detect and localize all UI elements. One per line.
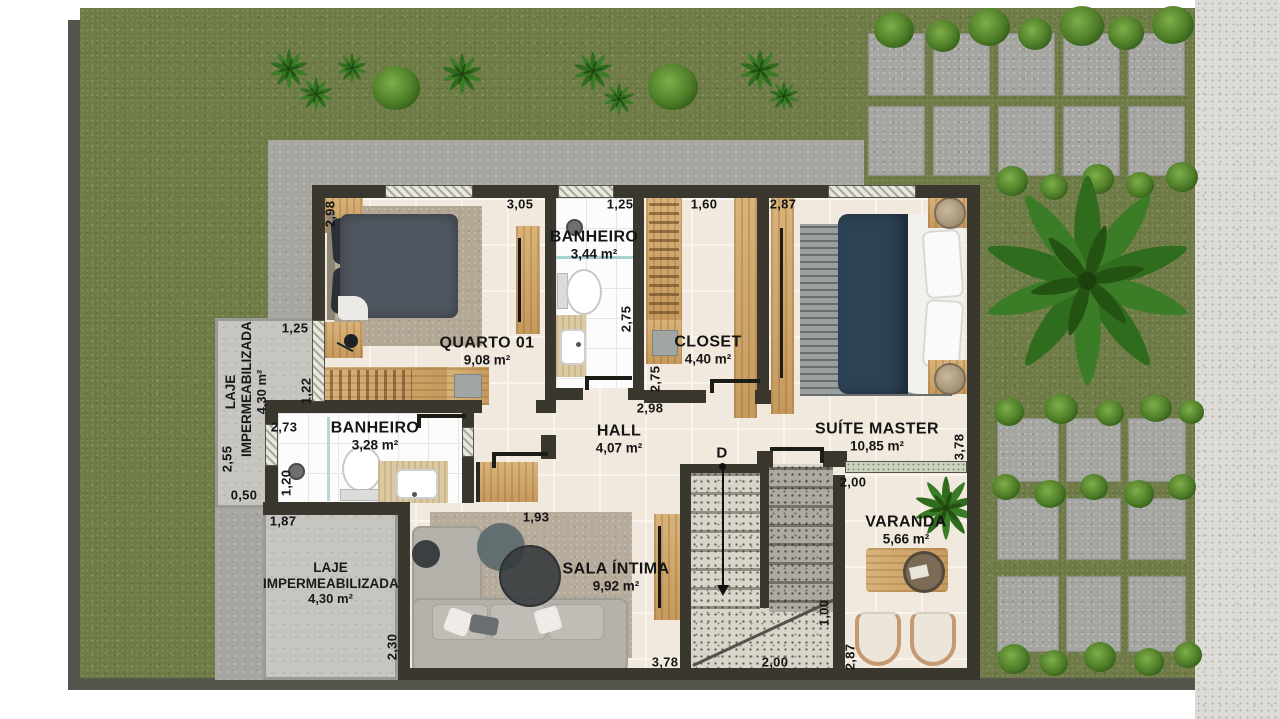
- stairs-direction-line: [722, 469, 724, 585]
- garden-paver: [1066, 498, 1121, 560]
- garden-bush: [1140, 394, 1172, 422]
- dim-laje-lower-right: 2,30: [386, 634, 399, 661]
- wardrobe-quarto-drawer: [454, 374, 482, 398]
- dim-closet-top: 1,60: [691, 198, 718, 211]
- garden-bush: [1060, 6, 1104, 46]
- site-wall-left: [68, 20, 80, 690]
- room-name: VARANDA: [865, 514, 947, 532]
- wall-sala-left: [398, 512, 410, 680]
- shower-glass-social: [327, 417, 330, 501]
- garden-bush: [1178, 400, 1204, 424]
- garden-bush: [1152, 6, 1194, 44]
- wall-stairs-divider: [760, 455, 769, 608]
- room-label-suite-master: SUÍTE MASTER 10,85 m²: [815, 421, 939, 454]
- small-palm-plant: [602, 82, 636, 116]
- sink-tap-344: [576, 342, 581, 347]
- dim-varanda-top: 2,00: [840, 476, 867, 489]
- varanda-railing: [845, 461, 967, 473]
- coffee-table-large: [499, 545, 561, 607]
- varanda-chair: [855, 612, 901, 666]
- garden-bush: [926, 20, 960, 52]
- room-label-closet: CLOSET 4,40 m²: [674, 334, 741, 367]
- garden-bush: [992, 474, 1020, 500]
- varanda-chair: [910, 612, 956, 666]
- hall-bench: [476, 462, 538, 502]
- room-area: 9,92 m²: [563, 579, 670, 594]
- garden-paver: [1128, 576, 1186, 652]
- garden-paver: [997, 576, 1059, 652]
- wall-closet-suite: [757, 185, 769, 404]
- bed-quarto-sheet: [338, 296, 368, 320]
- garden-bush: [994, 398, 1024, 426]
- dim-laje-upper-c: 2,55: [221, 446, 234, 473]
- garden-paver: [997, 418, 1059, 482]
- small-palm-plant: [298, 76, 334, 112]
- wardrobe-closet-clothes: [649, 196, 679, 314]
- garden-bush: [1018, 18, 1052, 50]
- tv-quarto: [518, 238, 521, 322]
- dim-suite-top: 2,87: [770, 198, 797, 211]
- sidewalk-strip: [1195, 0, 1280, 719]
- dim-suite-right: 3,78: [953, 434, 966, 461]
- window-banheiro-top: [558, 185, 614, 198]
- room-label-banheiro-social: BANHEIRO 3,28 m²: [331, 420, 420, 453]
- garden-bush: [648, 64, 698, 110]
- garden-bush: [1124, 480, 1154, 508]
- garden-bush: [1044, 394, 1078, 424]
- door-quarto: [492, 452, 548, 468]
- garden-bush: [372, 66, 420, 110]
- room-area: 4,40 m²: [674, 352, 741, 367]
- laje-name: LAJE IMPERMEABILIZADA: [223, 327, 254, 457]
- pillow-suite: [922, 299, 965, 369]
- door-closet: [710, 379, 760, 393]
- ottoman-dark: [412, 540, 440, 568]
- dim-laje-upper-b: 1,22: [300, 378, 313, 405]
- garden-bush: [968, 8, 1010, 46]
- room-label-varanda: VARANDA 5,66 m²: [865, 514, 947, 547]
- wall-right: [967, 185, 980, 680]
- dim-sala-top: 1,93: [523, 511, 550, 524]
- palm-tree: [975, 168, 1200, 393]
- floor-plan-canvas: QUARTO 01 9,08 m² BANHEIRO 3,44 m² CLOSE…: [0, 0, 1280, 719]
- wall-mid-horizontal-b: [536, 400, 556, 413]
- room-name: HALL: [596, 423, 643, 441]
- dim-hall-top: 2,98: [637, 402, 664, 415]
- window-quarto-top: [385, 185, 473, 198]
- small-palm-plant: [768, 80, 800, 112]
- garden-paver: [868, 106, 925, 176]
- garden-bush: [1134, 648, 1164, 676]
- garden-bush: [1034, 480, 1066, 508]
- wall-banheiro-bottom-a: [545, 388, 583, 400]
- dim-banheiro-social-top: 2,73: [271, 421, 298, 434]
- window-quarto-left: [312, 320, 325, 402]
- dim-quarto-left: 2,98: [324, 201, 337, 228]
- laje-area: 4,30 m²: [254, 312, 269, 472]
- garden-bush: [1096, 400, 1124, 426]
- garden-bush: [1040, 650, 1068, 676]
- garden-paver: [933, 106, 990, 176]
- garden-paver: [1128, 418, 1186, 482]
- pillow-suite: [922, 229, 965, 299]
- window-suite-top: [828, 185, 916, 198]
- stairs-direction-label: D: [716, 446, 727, 461]
- dim-laje-upper-a: 1,25: [282, 322, 309, 335]
- room-name: QUARTO 01: [440, 335, 535, 353]
- toilet-bowl-344: [566, 269, 602, 315]
- dim-laje-lower-top: 1,87: [270, 515, 297, 528]
- door-banheiro-social: [417, 414, 466, 428]
- wall-stairs-left: [680, 464, 691, 668]
- laje-area: 4,30 m²: [263, 591, 398, 606]
- garden-paver: [1066, 576, 1121, 652]
- room-area: 4,07 m²: [596, 441, 643, 456]
- laje-name: LAJE IMPERMEABILIZADA: [263, 560, 398, 591]
- room-name: CLOSET: [674, 334, 741, 352]
- room-label-quarto: QUARTO 01 9,08 m²: [440, 335, 535, 368]
- sink-basin-social: [396, 469, 438, 499]
- garden-paver: [1066, 418, 1121, 482]
- wall-bottom: [398, 668, 980, 680]
- room-area: 3,28 m²: [331, 438, 420, 453]
- room-name: BANHEIRO: [550, 229, 639, 247]
- dim-closet-left: 2,75: [649, 366, 662, 393]
- concrete-band-top: [268, 140, 864, 186]
- bed-suite-duvet: [838, 214, 908, 394]
- dim-varanda-left: 2,87: [844, 644, 857, 671]
- dim-sala-bottom: 3,78: [652, 656, 679, 669]
- garden-bush: [1168, 474, 1196, 500]
- room-name: SUÍTE MASTER: [815, 421, 939, 439]
- room-area: 3,44 m²: [550, 247, 639, 262]
- stairs-right-shadow: [769, 467, 833, 612]
- label-laje-lower: LAJE IMPERMEABILIZADA 4,30 m²: [263, 560, 398, 606]
- garden-bush: [874, 12, 914, 48]
- dim-banheiro-social-left: 1,20: [280, 470, 293, 497]
- sink-basin-344: [560, 329, 586, 365]
- garden-bush: [998, 644, 1030, 674]
- wall-banheiro-closet: [633, 185, 644, 400]
- toilet-bowl-social: [342, 446, 382, 492]
- door-banheiro-suite: [585, 376, 632, 390]
- room-label-sala-intima: SALA ÍNTIMA 9,92 m²: [563, 561, 670, 594]
- dim-banheiro-right: 2,75: [620, 306, 633, 333]
- hall-bench-edge: [476, 462, 480, 502]
- garden-bush: [1080, 474, 1108, 500]
- room-name: SALA ÍNTIMA: [563, 561, 670, 579]
- small-palm-plant: [440, 52, 484, 96]
- room-name: BANHEIRO: [331, 420, 420, 438]
- sink-tap-social: [412, 492, 417, 497]
- room-label-banheiro-suite: BANHEIRO 3,44 m²: [550, 229, 639, 262]
- dim-banheiro-top: 1,25: [607, 198, 634, 211]
- wardrobe-suite-handle: [780, 228, 783, 378]
- sill-banheiro-social-door: [462, 427, 474, 457]
- wall-quarto-banheiro: [545, 185, 556, 400]
- garden-paver: [998, 106, 1055, 176]
- room-label-hall: HALL 4,07 m²: [596, 423, 643, 456]
- room-area: 5,66 m²: [865, 532, 947, 547]
- dim-quarto-top: 3,05: [507, 198, 534, 211]
- toilet-tank-social: [340, 489, 382, 501]
- decor-plate: [934, 197, 966, 229]
- decor-plate: [934, 363, 966, 395]
- dim-stairs-right: 1,00: [818, 600, 831, 627]
- garden-bush: [1108, 16, 1144, 50]
- room-area: 10,85 m²: [815, 439, 939, 454]
- concrete-band-left-lower: [215, 508, 263, 680]
- dim-laje-upper-d: 0,50: [231, 489, 258, 502]
- room-area: 9,08 m²: [440, 353, 535, 368]
- wall-banheiro-social-right: [462, 457, 474, 503]
- garden-bush: [1084, 642, 1116, 672]
- wall-stairs-varanda: [833, 475, 845, 668]
- small-palm-plant: [336, 52, 368, 84]
- garden-bush: [1174, 642, 1202, 668]
- stairs-direction-arrowhead: [717, 585, 729, 596]
- dim-stairs-bottom: 2,00: [762, 656, 789, 669]
- wardrobe-quarto-clothes: [330, 370, 412, 402]
